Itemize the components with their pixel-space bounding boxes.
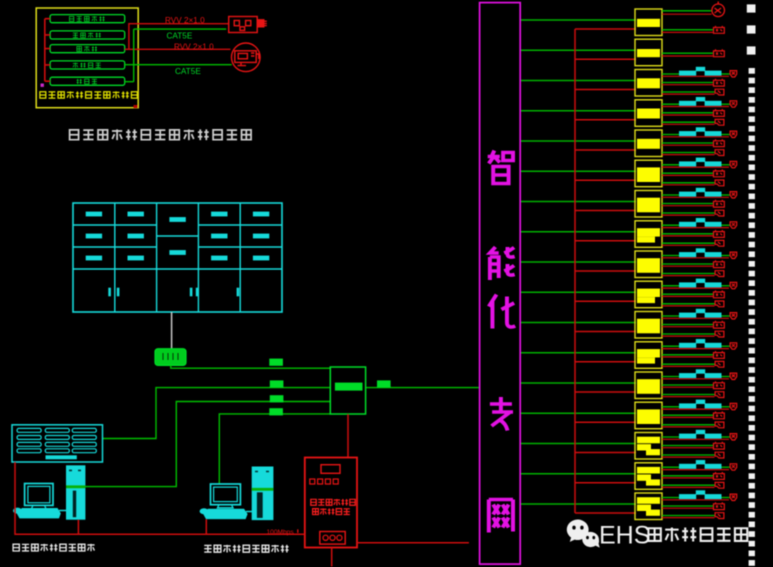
- svg-text:RVV 2×1.0: RVV 2×1.0: [165, 16, 205, 25]
- svg-text:RVV 2×1.0: RVV 2×1.0: [174, 43, 214, 52]
- svg-text:EHS: EHS: [599, 522, 650, 550]
- svg-text:100Mbps: 100Mbps: [267, 529, 295, 536]
- svg-text:CAT5E: CAT5E: [175, 67, 201, 76]
- svg-text:CAT5E: CAT5E: [167, 32, 193, 41]
